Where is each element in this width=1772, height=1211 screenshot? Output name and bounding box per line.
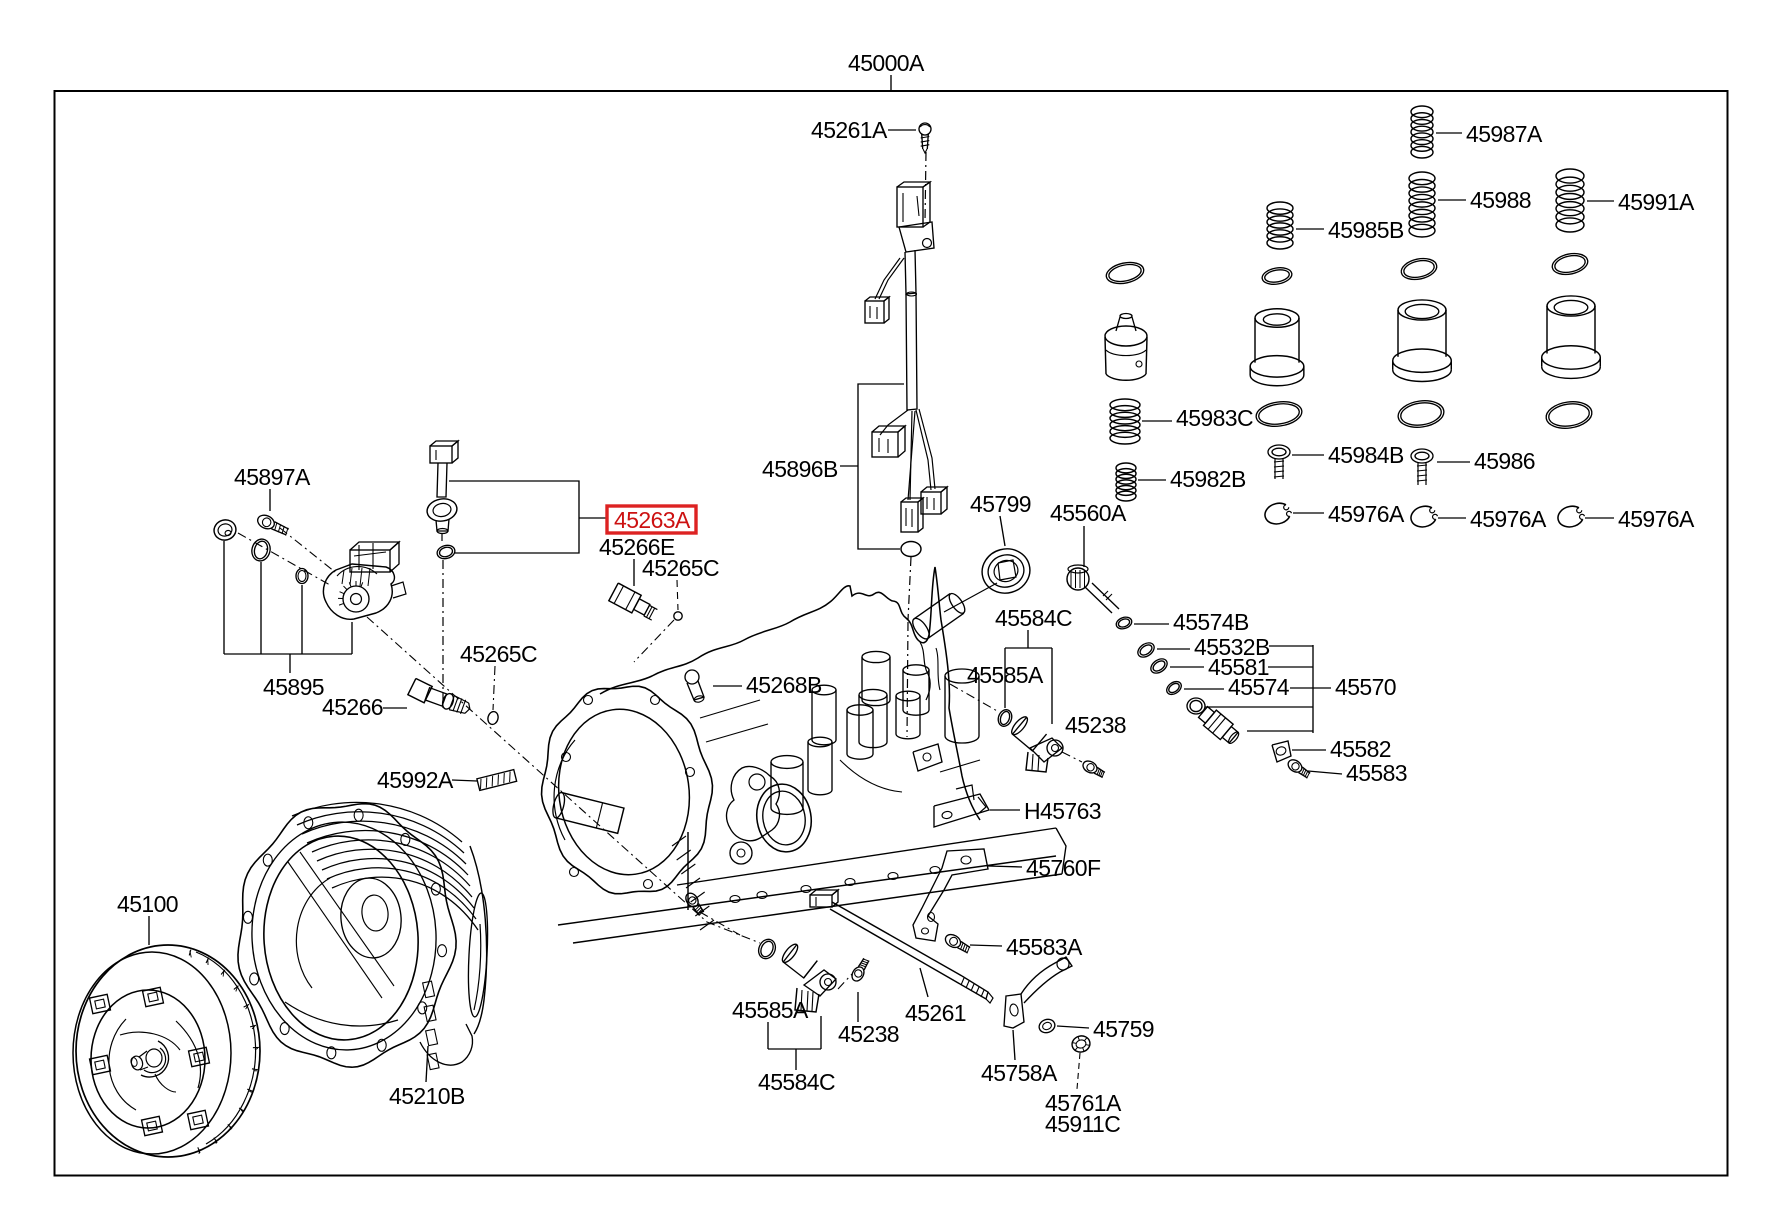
svg-text:45238: 45238 (1065, 712, 1126, 738)
svg-text:45268B: 45268B (746, 672, 822, 698)
svg-text:45263A: 45263A (614, 507, 691, 533)
svg-text:45987A: 45987A (1466, 121, 1543, 147)
svg-text:45991A: 45991A (1618, 189, 1695, 215)
svg-text:45574: 45574 (1228, 674, 1290, 700)
svg-text:45574B: 45574B (1173, 609, 1249, 635)
svg-text:45261A: 45261A (811, 117, 888, 143)
svg-text:45988: 45988 (1470, 187, 1531, 213)
svg-text:45896B: 45896B (762, 456, 838, 482)
svg-text:45895: 45895 (263, 674, 324, 700)
svg-text:45585A: 45585A (967, 662, 1044, 688)
svg-text:45560A: 45560A (1050, 500, 1127, 526)
svg-text:45911C: 45911C (1045, 1111, 1120, 1137)
svg-text:45986: 45986 (1474, 448, 1535, 474)
svg-text:45759: 45759 (1093, 1016, 1154, 1042)
svg-text:45265C: 45265C (642, 555, 719, 581)
svg-text:45265C: 45265C (460, 641, 537, 667)
svg-text:45983C: 45983C (1176, 405, 1253, 431)
svg-text:45758A: 45758A (981, 1060, 1058, 1086)
svg-text:45897A: 45897A (234, 464, 311, 490)
svg-text:45584C: 45584C (758, 1069, 835, 1095)
svg-text:45976A: 45976A (1618, 506, 1695, 532)
svg-text:45210B: 45210B (389, 1083, 465, 1109)
svg-text:45261: 45261 (905, 1000, 966, 1026)
svg-text:H45763: H45763 (1024, 798, 1101, 824)
svg-text:45992A: 45992A (377, 767, 454, 793)
svg-text:45266: 45266 (322, 694, 383, 720)
svg-text:45985B: 45985B (1328, 217, 1404, 243)
svg-text:45984B: 45984B (1328, 442, 1404, 468)
svg-text:45100: 45100 (117, 891, 178, 917)
svg-text:45238: 45238 (838, 1021, 899, 1047)
svg-text:45976A: 45976A (1470, 506, 1547, 532)
svg-text:45584C: 45584C (995, 605, 1072, 631)
svg-text:45982B: 45982B (1170, 466, 1246, 492)
svg-text:45000A: 45000A (848, 50, 925, 76)
svg-text:45582: 45582 (1330, 736, 1391, 762)
svg-text:45570: 45570 (1335, 674, 1396, 700)
svg-text:45760F: 45760F (1026, 855, 1101, 881)
svg-text:45799: 45799 (970, 491, 1031, 517)
svg-text:45583: 45583 (1346, 760, 1407, 786)
svg-text:45585A: 45585A (732, 997, 809, 1023)
svg-text:45583A: 45583A (1006, 934, 1083, 960)
svg-text:45976A: 45976A (1328, 501, 1405, 527)
